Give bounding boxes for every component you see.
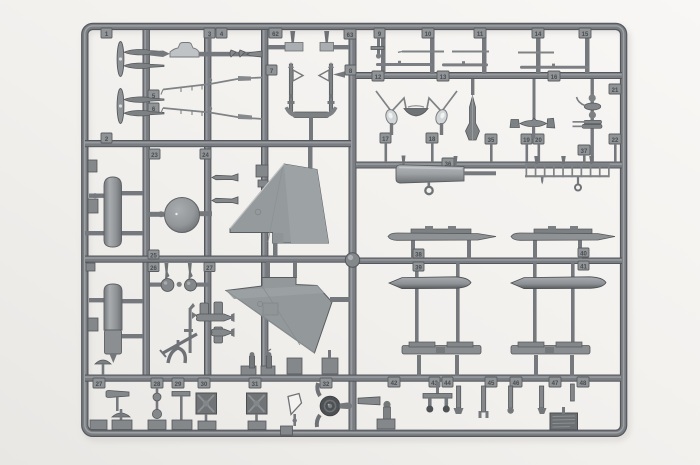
svg-text:15: 15 bbox=[582, 32, 589, 38]
svg-text:25: 25 bbox=[150, 254, 157, 260]
svg-text:42: 42 bbox=[391, 381, 398, 387]
svg-text:46: 46 bbox=[513, 381, 520, 387]
svg-text:38: 38 bbox=[415, 253, 422, 259]
svg-text:14: 14 bbox=[535, 32, 542, 38]
svg-text:27: 27 bbox=[96, 382, 103, 388]
svg-text:18: 18 bbox=[429, 137, 436, 143]
svg-text:21: 21 bbox=[612, 88, 619, 94]
svg-text:31: 31 bbox=[252, 382, 259, 388]
svg-text:41: 41 bbox=[580, 265, 587, 271]
svg-text:10: 10 bbox=[425, 32, 432, 38]
svg-text:24: 24 bbox=[202, 153, 209, 159]
svg-text:11: 11 bbox=[477, 32, 484, 38]
svg-text:32: 32 bbox=[323, 382, 330, 388]
svg-text:44: 44 bbox=[444, 381, 451, 387]
svg-text:12: 12 bbox=[375, 75, 382, 81]
svg-text:48: 48 bbox=[580, 381, 587, 387]
svg-text:63: 63 bbox=[347, 33, 354, 39]
svg-text:37: 37 bbox=[581, 149, 588, 155]
svg-text:20: 20 bbox=[535, 138, 542, 144]
svg-text:13: 13 bbox=[440, 75, 447, 81]
svg-text:28: 28 bbox=[154, 382, 161, 388]
svg-text:45: 45 bbox=[488, 381, 495, 387]
svg-text:22: 22 bbox=[612, 138, 619, 144]
svg-text:30: 30 bbox=[201, 382, 208, 388]
svg-text:47: 47 bbox=[552, 381, 559, 387]
svg-text:40: 40 bbox=[580, 252, 587, 258]
svg-text:23: 23 bbox=[151, 153, 158, 159]
svg-text:17: 17 bbox=[382, 137, 389, 143]
svg-text:27: 27 bbox=[206, 266, 213, 272]
svg-text:35: 35 bbox=[488, 138, 495, 144]
svg-text:26: 26 bbox=[150, 266, 157, 272]
svg-text:39: 39 bbox=[415, 266, 422, 272]
svg-text:19: 19 bbox=[523, 138, 530, 144]
svg-text:62: 62 bbox=[272, 32, 279, 38]
svg-text:29: 29 bbox=[175, 382, 182, 388]
svg-text:16: 16 bbox=[551, 75, 558, 81]
